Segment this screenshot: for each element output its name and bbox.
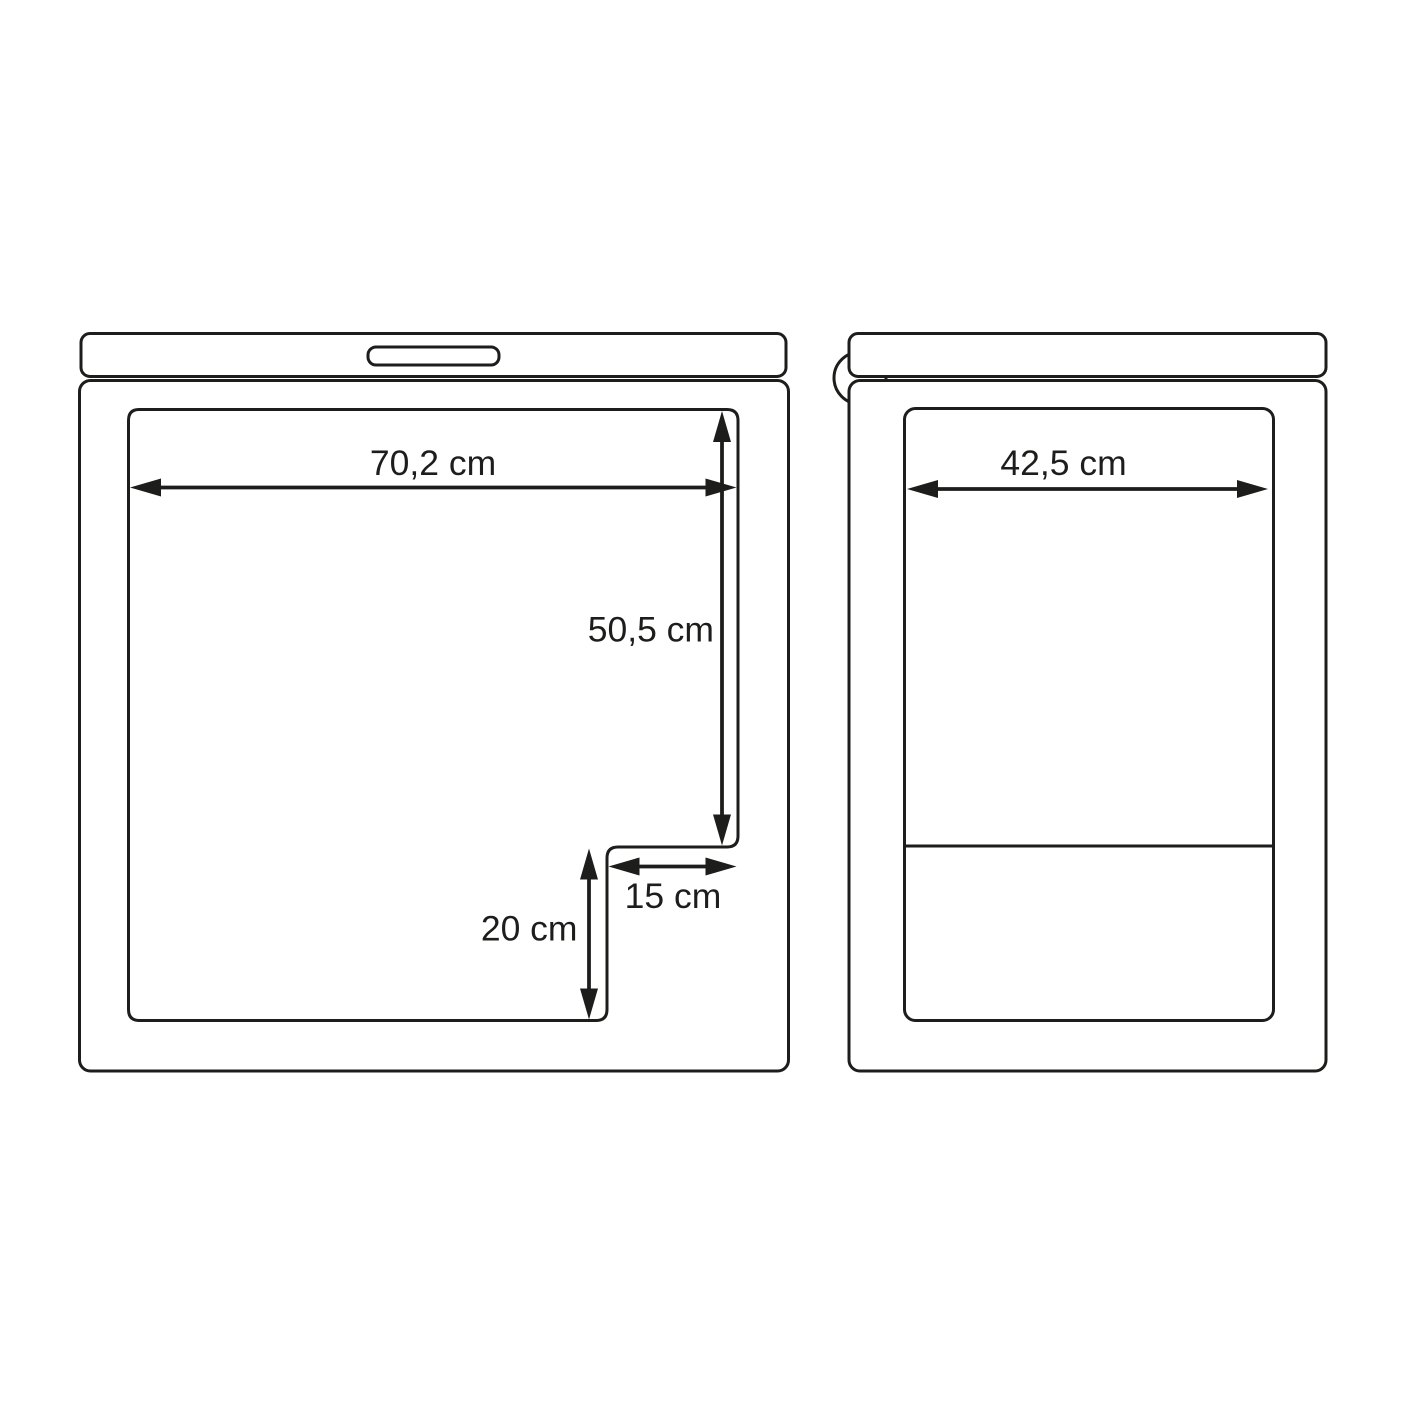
svg-text:42,5 cm: 42,5 cm [1000,443,1126,483]
svg-text:50,5 cm: 50,5 cm [588,610,714,650]
svg-text:15 cm: 15 cm [625,876,722,916]
svg-text:70,2 cm: 70,2 cm [370,443,496,483]
svg-text:20 cm: 20 cm [481,909,578,949]
